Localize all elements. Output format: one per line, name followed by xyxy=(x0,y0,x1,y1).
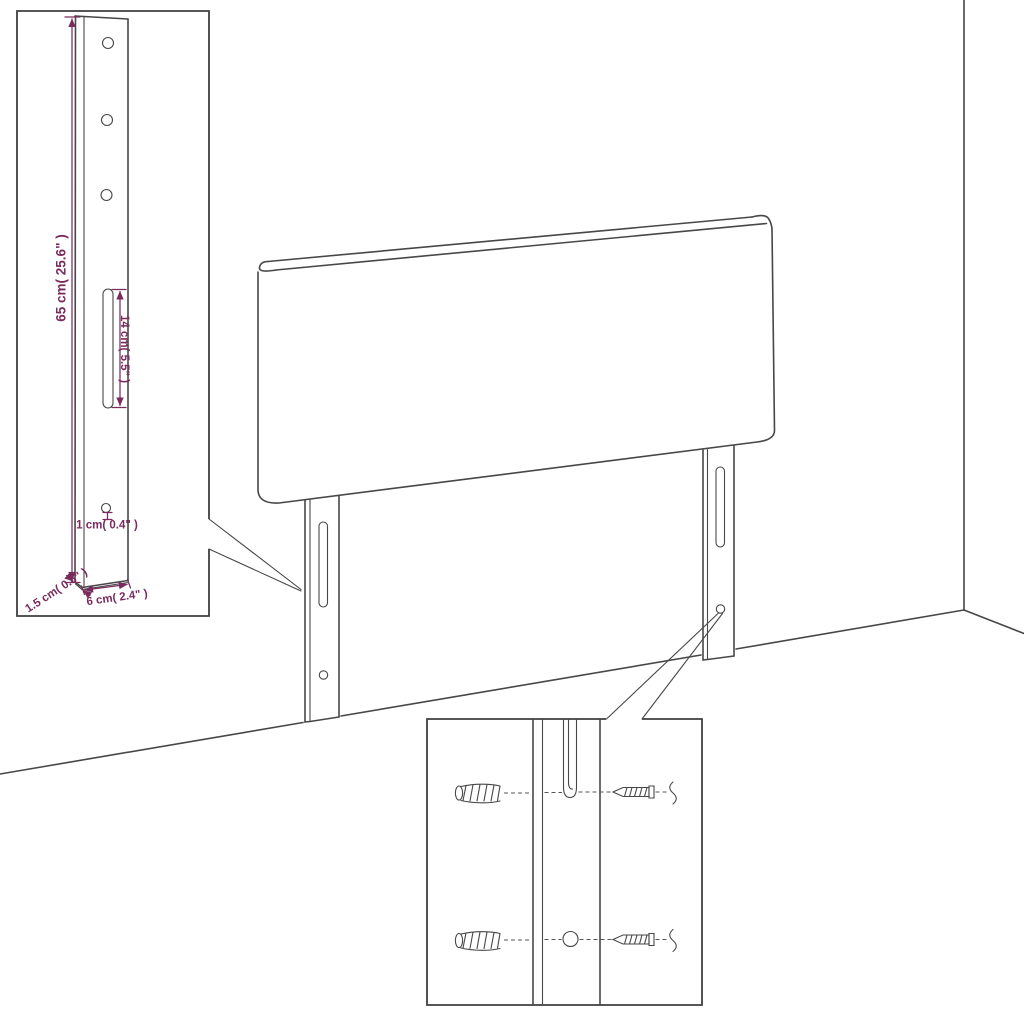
dimension-width: 6 cm( 2.4" ) xyxy=(82,580,149,609)
leg-hole xyxy=(102,115,113,126)
dim-label-hole: 1 cm( 0.4" ) xyxy=(76,520,138,532)
left-leg xyxy=(305,496,339,723)
screw-head xyxy=(649,934,654,946)
screw-threads xyxy=(625,788,648,797)
plug-bottom xyxy=(461,801,500,803)
plug-ribs xyxy=(463,932,500,949)
floor-line xyxy=(341,655,701,716)
dim-label-leg-height: 65 cm( 25.6" ) xyxy=(54,234,69,321)
wall-plug-icon xyxy=(455,784,500,803)
left-leg-slot xyxy=(319,522,328,607)
mounting-detail-inset xyxy=(427,719,702,1005)
headboard-top-front-edge xyxy=(276,224,767,271)
leg-left-edge xyxy=(75,16,76,582)
headboard-diagram: 65 cm( 25.6" ) 14 cm( 5.5" ) 1 cm( 0.4" … xyxy=(0,0,1024,1024)
dim-label-slot-length: 14 cm( 5.5" ) xyxy=(118,315,130,383)
screw-head xyxy=(649,786,654,798)
leg-slot xyxy=(103,289,113,408)
right-leg-hole xyxy=(716,605,724,613)
headboard-top-left-cap xyxy=(259,262,276,272)
leg-hole xyxy=(101,190,112,201)
screw-icon xyxy=(613,786,654,798)
alignment-dashed-lines xyxy=(504,792,669,940)
wall-plug-icon xyxy=(455,932,500,951)
left-leg-hole xyxy=(319,671,327,679)
callout-leader-lines xyxy=(209,519,723,719)
headboard-top-back-edge xyxy=(268,217,752,262)
plug-bottom xyxy=(461,948,500,950)
strip-slot xyxy=(564,719,577,798)
room-corner-lines xyxy=(0,0,1024,774)
mounting-leg-strip xyxy=(533,719,600,1005)
leader-line xyxy=(642,614,723,720)
leg-detail-inset: 65 cm( 25.6" ) 14 cm( 5.5" ) 1 cm( 0.4" … xyxy=(17,11,209,616)
dimension-thickness: 1.5 cm( 0.6" ) xyxy=(23,566,90,615)
dim-tick xyxy=(128,580,131,589)
leader-line xyxy=(209,519,301,590)
leg-hole xyxy=(103,38,114,49)
leader-line xyxy=(209,549,301,591)
floor-line xyxy=(0,723,303,775)
leg-small-hole xyxy=(102,504,111,513)
plug-tip xyxy=(455,786,462,800)
leg-top-edge xyxy=(75,16,128,19)
plug-tip xyxy=(455,934,462,948)
right-leg-slot xyxy=(716,467,725,547)
strip-slot-inner xyxy=(569,719,573,789)
plug-ribs xyxy=(463,785,500,802)
floor-line xyxy=(736,610,964,649)
screw-threads xyxy=(625,935,648,944)
screw-icon xyxy=(613,934,654,946)
diagram-canvas: 65 cm( 25.6" ) 14 cm( 5.5" ) 1 cm( 0.4" … xyxy=(0,0,1024,1024)
dim-label-width: 6 cm( 2.4" ) xyxy=(86,588,149,608)
dim-label-thickness: 1.5 cm( 0.6" ) xyxy=(23,566,89,615)
wall-break-icon xyxy=(670,782,677,804)
leader-line xyxy=(607,614,719,720)
wall-break-icon xyxy=(670,930,677,952)
headboard-outline xyxy=(258,229,775,503)
inset-border xyxy=(427,719,702,1005)
floor-line xyxy=(964,610,1024,634)
right-leg xyxy=(703,446,734,660)
headboard-panel xyxy=(258,216,775,504)
strip-hole xyxy=(563,932,578,947)
headboard-top-right-cap xyxy=(752,216,772,229)
